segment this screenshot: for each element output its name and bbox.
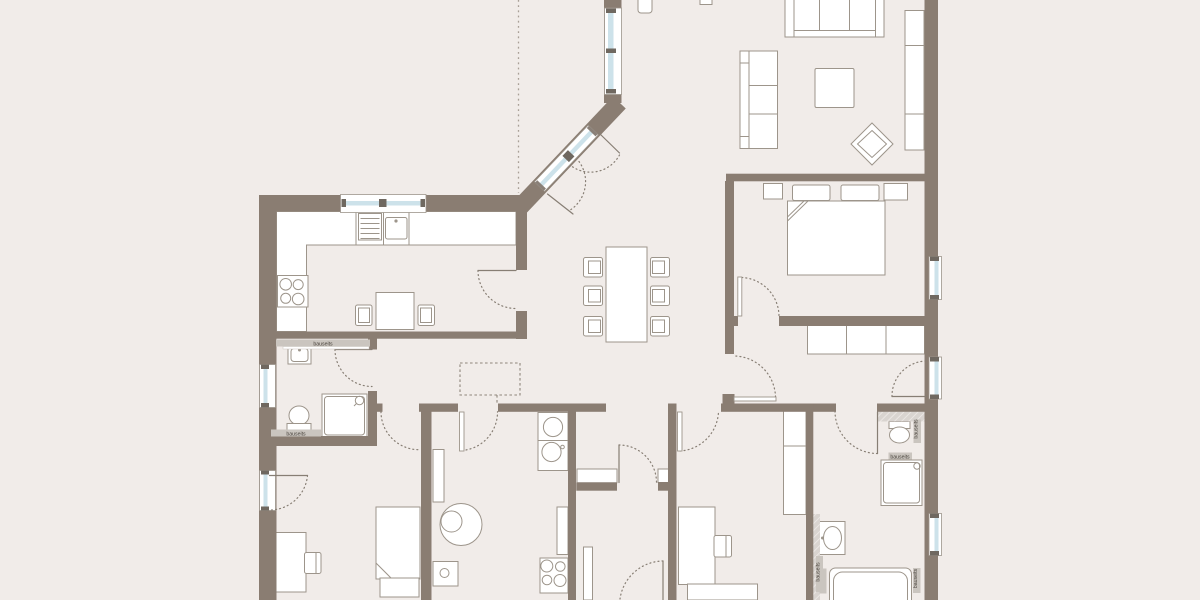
svg-text:bauseits: bauseits xyxy=(914,419,920,439)
svg-text:bauseits: bauseits xyxy=(913,568,919,588)
svg-text:bauseits: bauseits xyxy=(286,432,306,438)
svg-text:bauseits: bauseits xyxy=(313,342,333,348)
svg-text:bauseits: bauseits xyxy=(890,455,910,461)
